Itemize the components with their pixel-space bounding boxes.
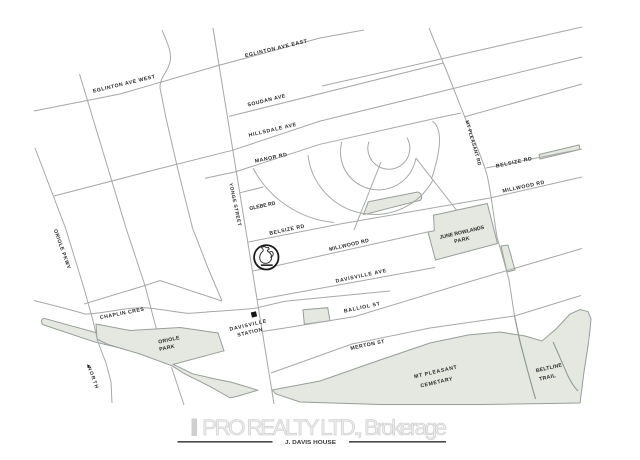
svg-text:J. DAVIS HOUSE: J. DAVIS HOUSE xyxy=(285,440,336,446)
svg-text:PRO REALTY LTD., Brokerage: PRO REALTY LTD., Brokerage xyxy=(202,415,447,440)
